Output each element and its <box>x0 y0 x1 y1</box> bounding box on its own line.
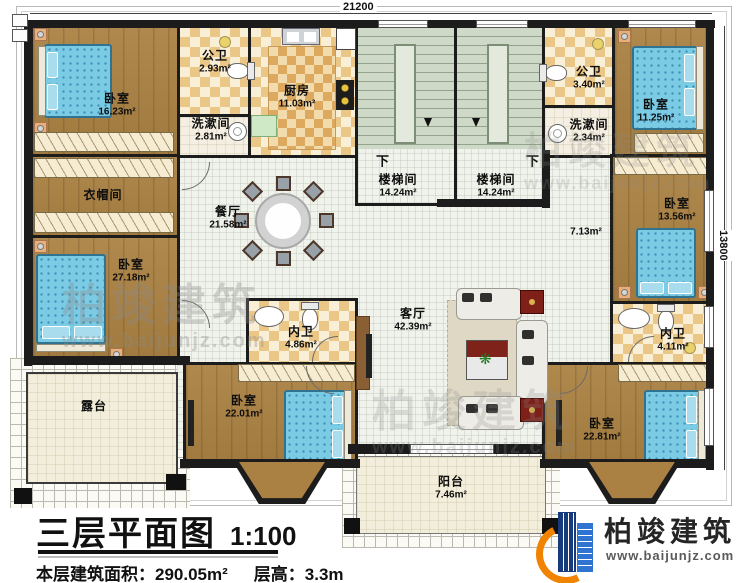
room-area: 13.56m² <box>658 211 695 223</box>
dimension-right-value: 13800 <box>714 230 732 261</box>
room-label-bedroom-mr: 卧室 13.56m² <box>658 197 695 222</box>
wardrobe <box>34 212 174 233</box>
bed-headboard <box>696 46 704 130</box>
room-label-bedroom-br: 卧室 22.81m² <box>583 417 620 442</box>
room-area: 2.34m² <box>569 132 608 144</box>
tv <box>556 400 562 446</box>
balcony-pillar <box>344 518 360 534</box>
room-area: 2.81m² <box>191 131 230 143</box>
room-area: 22.81m² <box>583 431 620 443</box>
room-area: 7.13m² <box>570 226 602 238</box>
room-name: 内卫 <box>285 325 317 339</box>
down-label: 下 <box>526 155 540 170</box>
brand-name: 柏竣建筑 <box>604 510 736 550</box>
wardrobe <box>34 158 174 178</box>
terrace-floor <box>26 372 178 484</box>
room-label-public-bath-left: 公卫 2.93m² <box>199 49 231 74</box>
wardrobe <box>618 364 708 382</box>
bath-light <box>219 36 231 48</box>
title-underline <box>38 550 278 554</box>
room-label-terrace: 露台 <box>81 400 107 414</box>
room-label-living: 客厅 42.39m² <box>394 307 431 332</box>
bed-headboard <box>38 46 46 116</box>
wall <box>24 20 32 366</box>
pillow <box>332 430 343 458</box>
stair-arrow-left <box>424 118 432 127</box>
dining-chair <box>276 251 291 266</box>
washbasin <box>618 308 650 329</box>
nightstand <box>34 240 47 253</box>
room-name: 厨房 <box>279 84 316 98</box>
room-area: 16.23m² <box>98 106 135 118</box>
room-area: 27.18m² <box>112 272 149 284</box>
wardrobe <box>634 133 704 153</box>
pillow <box>684 54 695 82</box>
kitchen-cabinet <box>251 115 277 137</box>
window <box>628 20 696 28</box>
washbasin <box>228 122 247 141</box>
nightstand <box>618 286 631 299</box>
room-label-bath-mr: 内卫 4.11m² <box>657 327 688 352</box>
room-label-kitchen: 厨房 11.03m² <box>279 84 316 109</box>
room-label-balcony: 阳台 7.46m² <box>435 475 467 500</box>
chimney-block <box>12 14 28 27</box>
room-name: 卧室 <box>98 92 135 106</box>
dining-chair <box>276 176 291 191</box>
wall <box>27 20 715 28</box>
room-name: 卧室 <box>583 417 620 431</box>
room-name: 洗漱间 <box>191 117 230 131</box>
floorplan-canvas: 21200 13800 <box>0 0 750 583</box>
plant-icon: ❋ <box>479 350 492 368</box>
sofa-pillow <box>522 330 534 339</box>
room-label-washroom-right: 洗漱间 2.34m² <box>569 118 608 143</box>
side-table <box>520 290 544 314</box>
room-area: 11.25m² <box>638 112 675 124</box>
sofa-pillow <box>480 293 492 302</box>
room-label-bath-ml: 内卫 4.86m² <box>285 325 317 350</box>
room-name: 内卫 <box>657 327 688 341</box>
pillow <box>640 282 664 294</box>
wardrobe <box>34 132 174 152</box>
logo-building-icon <box>577 523 593 572</box>
bay-window-bottom-left <box>224 462 340 504</box>
chimney-block <box>12 29 28 42</box>
room-name: 楼梯间 <box>378 173 417 187</box>
room-name: 公卫 <box>573 65 605 79</box>
room-name: 洗漱间 <box>569 118 608 132</box>
sofa <box>458 396 524 430</box>
room-label-stairwell-left: 楼梯间 14.24m² <box>378 173 417 198</box>
window <box>704 388 714 446</box>
tv <box>188 400 194 446</box>
room-area: 14.24m² <box>378 187 417 199</box>
room-label-public-bath-right: 公卫 3.40m² <box>573 65 605 90</box>
bay-window-bottom-right <box>574 462 690 504</box>
room-name: 卧室 <box>638 98 675 112</box>
pillow <box>686 396 697 424</box>
stair-rail-right <box>487 44 509 144</box>
dining-table <box>255 193 311 249</box>
floor-height-label: 层高：3.3m <box>254 565 344 583</box>
dining-chair <box>319 213 334 228</box>
bath-light <box>592 38 604 50</box>
wardrobe <box>614 157 708 175</box>
wall <box>24 356 190 365</box>
room-name: 阳台 <box>435 475 467 489</box>
room-label-stairwell-right: 楼梯间 14.24m² <box>476 173 515 198</box>
sofa-pillow <box>486 404 498 413</box>
room-name: 餐厅 <box>209 205 246 219</box>
bed-headboard <box>36 344 106 352</box>
room-label-bedroom-tr: 卧室 11.25m² <box>638 98 675 123</box>
plan-title: 三层平面图 <box>36 515 216 553</box>
room-label-bedroom-tl: 卧室 16.23m² <box>98 92 135 117</box>
nightstand <box>34 28 47 41</box>
title-block: 三层平面图1:100 <box>36 506 297 555</box>
sofa-pillow <box>522 356 534 365</box>
plan-scale: 1:100 <box>230 521 297 551</box>
room-area: 7.46m² <box>435 489 467 501</box>
pillow <box>332 396 343 424</box>
fridge <box>336 28 356 50</box>
wall <box>437 199 549 207</box>
room-area: 2.93m² <box>199 63 231 75</box>
wardrobe <box>238 364 355 382</box>
room-area: 42.39m² <box>394 321 431 333</box>
brand-logo-icon <box>538 508 602 578</box>
dimension-top-value: 21200 <box>340 1 377 13</box>
room-name: 卧室 <box>112 258 149 272</box>
sofa-pillow <box>466 404 478 413</box>
pillow <box>686 430 697 458</box>
room-label-washroom-left: 洗漱间 2.81m² <box>191 117 230 142</box>
corridor-floor <box>545 155 612 365</box>
dimension-line-top <box>30 13 712 14</box>
balcony-window <box>410 444 494 454</box>
pillow <box>47 52 58 78</box>
room-area: 11.03m² <box>279 98 316 110</box>
title-underline-shadow <box>38 556 278 558</box>
side-table <box>520 398 544 422</box>
room-area: 3.40m² <box>573 79 605 91</box>
pillow <box>47 84 58 110</box>
down-label: 下 <box>376 155 390 170</box>
floor-area-label: 本层建筑面积：290.05m² <box>36 565 228 583</box>
room-name: 衣帽间 <box>83 189 122 203</box>
window <box>704 306 714 348</box>
room-label-bedroom-ml: 卧室 27.18m² <box>112 258 149 283</box>
washbasin <box>254 306 284 327</box>
stair-arrow-right <box>472 118 480 127</box>
room-area: 22.01m² <box>225 408 262 420</box>
pillow <box>74 326 102 339</box>
room-name: 卧室 <box>225 394 262 408</box>
room-label-dining: 餐厅 21.58m² <box>209 205 246 230</box>
sofa-pillow <box>462 293 474 302</box>
logo-building-icon <box>558 512 576 572</box>
washbasin <box>548 124 567 143</box>
room-label-bedroom-bl: 卧室 22.01m² <box>225 394 262 419</box>
terrace-pillar <box>166 474 186 490</box>
room-name: 楼梯间 <box>476 173 515 187</box>
tv <box>366 334 372 378</box>
room-name: 公卫 <box>199 49 231 63</box>
stair-down-label-left: 下 <box>376 155 390 170</box>
room-area: 4.86m² <box>285 339 317 351</box>
window <box>476 20 528 28</box>
pillow <box>42 326 70 339</box>
room-name: 客厅 <box>394 307 431 321</box>
room-area: 14.24m² <box>476 187 515 199</box>
window <box>704 190 714 252</box>
pillow <box>684 88 695 116</box>
toilet <box>545 65 567 81</box>
room-name: 卧室 <box>658 197 695 211</box>
room-area: 4.11m² <box>657 341 688 353</box>
nightstand <box>618 30 631 43</box>
stair-down-label-right: 下 <box>526 155 540 170</box>
window <box>378 20 428 28</box>
room-label-cloakroom: 衣帽间 <box>83 189 122 203</box>
brand-url: www.baijunjz.com <box>606 548 734 563</box>
plan-info-line: 本层建筑面积：290.05m²层高：3.3m <box>36 560 344 583</box>
stove <box>336 80 354 110</box>
pillow <box>668 282 692 294</box>
terrace-pillar <box>14 488 32 504</box>
room-name: 露台 <box>81 400 107 414</box>
stair-rail-left <box>394 44 416 144</box>
kitchen-sink <box>282 28 320 45</box>
room-area: 21.58m² <box>209 219 246 231</box>
room-label-hallway: 7.13m² <box>570 226 602 238</box>
